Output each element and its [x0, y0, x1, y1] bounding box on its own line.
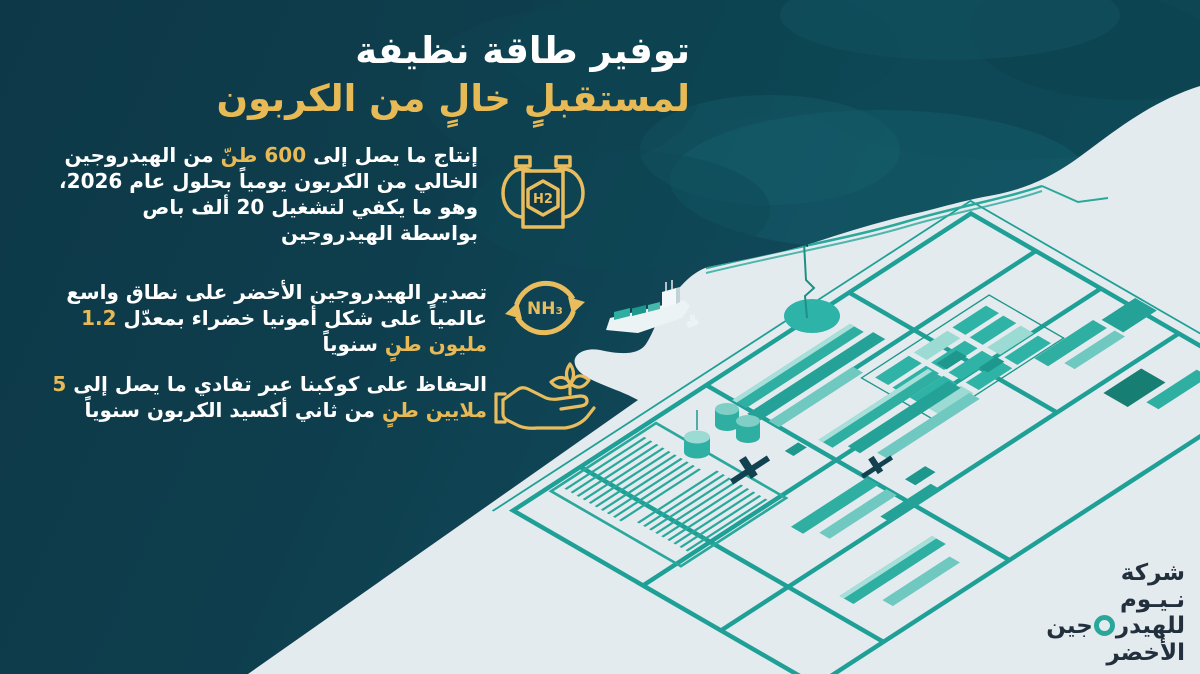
headline: توفير طاقة نظيفة لمستقبلٍ خالٍ من الكربو… — [216, 27, 690, 123]
ammonia-cycle-icon: NH₃ — [502, 264, 588, 356]
logo-line-company: شركة — [1046, 560, 1185, 587]
hydrogen-label: H2 — [533, 192, 553, 207]
headline-line1: توفير طاقة نظيفة — [216, 27, 690, 75]
headline-line2: لمستقبلٍ خالٍ من الكربون — [216, 75, 690, 123]
bullet-ammonia-export: تصدير الهيدروجين الأخضر على نطاق واسع عا… — [42, 279, 487, 357]
logo-line-neom: نـيـوم — [1046, 587, 1185, 614]
bullet-co2-avoided: الحفاظ على كوكبنا عبر تفادي ما يصل إلى 5… — [42, 371, 487, 423]
logo-word-right: للهيدر — [1116, 613, 1185, 639]
logo-line-green: الأخضر — [1046, 640, 1185, 667]
hand-plant-icon — [491, 358, 601, 444]
bullet-hydrogen-production: إنتاج ما يصل إلى 600 طنّ من الهيدروجين ا… — [58, 142, 478, 246]
infographic-canvas: توفير طاقة نظيفة لمستقبلٍ خالٍ من الكربو… — [0, 0, 1200, 674]
company-logo: شركة نـيـوم للهيدرجين الأخضر — [1046, 560, 1185, 666]
hydrogen-tanks-icon: H2 — [487, 137, 599, 241]
ammonia-label: NH₃ — [527, 299, 563, 319]
logo-line-hydrogen: للهيدرجين — [1046, 613, 1185, 640]
o-ring-icon — [1094, 615, 1115, 636]
logo-word-left: جين — [1046, 613, 1093, 639]
